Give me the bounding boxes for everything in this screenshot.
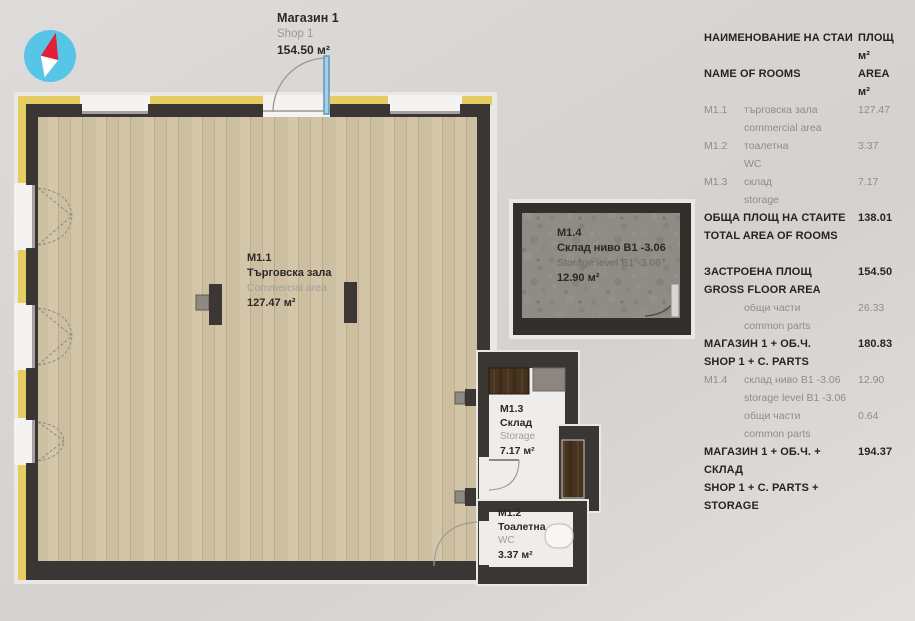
- total-label-bg: ОБЩА ПЛОЩ НА СТАИТЕ: [704, 209, 858, 227]
- room-name-en: common parts: [744, 317, 858, 335]
- total-value: 194.37: [858, 443, 904, 479]
- floor-plan-page: Магазин 1 Shop 1 154.50 м² M1.1 Търговск…: [0, 0, 915, 621]
- header-col1-bg: НАИМЕНОВАНИЕ НА СТАИ: [704, 29, 858, 65]
- room-name-en: Storage: [500, 430, 535, 444]
- total-label-en: SHOP 1 + C. PARTS + STORAGE: [704, 479, 858, 515]
- room-name-bg: общи части: [744, 407, 858, 425]
- room-name-en: storage level B1 -3.06: [744, 389, 858, 407]
- room-code: [704, 299, 744, 317]
- niche-cabinet: [558, 425, 600, 512]
- room-area: 7.17 м²: [500, 444, 535, 458]
- total-label-bg: МАГАЗИН 1 + ОБ.Ч. + СКЛАД: [704, 443, 858, 479]
- room-name-bg: склад: [744, 173, 858, 191]
- door-gap-m12: [479, 521, 489, 565]
- room-label-m14: M1.4 Склад ниво B1 -3.06 Storage level B…: [557, 226, 666, 286]
- total-label-en: TOTAL AREA OF ROOMS: [704, 227, 858, 245]
- door-gap-m13: [479, 457, 489, 501]
- room-name-bg: тоалетна: [744, 137, 858, 155]
- area-value: 0.64: [858, 407, 904, 425]
- room-label-m13: M1.3 Склад Storage 7.17 м²: [500, 402, 535, 458]
- table-row-total: ЗАСТРОЕНА ПЛОЩ 154.50 GROSS FLOOR AREA: [704, 263, 904, 299]
- pillar-wall-1: [455, 389, 477, 406]
- header-col2-en: AREA м²: [858, 65, 904, 101]
- total-value: 180.83: [858, 335, 904, 353]
- door-leaf: [324, 56, 329, 114]
- wc-fixture: [545, 524, 573, 548]
- total-value: 154.50: [858, 263, 904, 281]
- area-value: 7.17: [858, 173, 904, 191]
- room-id: M1.2: [498, 506, 546, 520]
- total-label-en: SHOP 1 + C. PARTS: [704, 353, 858, 371]
- total-value: 138.01: [858, 209, 904, 227]
- area-value: 127.47: [858, 101, 904, 119]
- header-col2-bg: ПЛОЩ м²: [858, 29, 904, 65]
- total-label-en: GROSS FLOOR AREA: [704, 281, 858, 299]
- room-name-en: Storage level B1 -3.06: [557, 256, 666, 271]
- room-name-bg: общи части: [744, 299, 858, 317]
- room-name-en: WC: [744, 155, 858, 173]
- room-code: [704, 407, 744, 425]
- pillar-right: [344, 282, 357, 323]
- total-label-bg: ЗАСТРОЕНА ПЛОЩ: [704, 263, 858, 281]
- table-row: общи части 0.64 common parts: [704, 407, 904, 443]
- table-header: НАИМЕНОВАНИЕ НА СТАИ ПЛОЩ м² NAME OF ROO…: [704, 29, 904, 101]
- room-area: 3.37 м²: [498, 548, 546, 562]
- shop-title-label: Магазин 1 Shop 1 154.50 м²: [277, 10, 339, 58]
- table-row: M1.4 склад ниво B1 -3.06 12.90 storage l…: [704, 371, 904, 407]
- header-col1-en: NAME OF ROOMS: [704, 65, 858, 101]
- floor-plan-drawing: [0, 0, 710, 621]
- table-row: общи части 26.33 common parts: [704, 299, 904, 335]
- room-label-m12: M1.2 Тоалетна WC 3.37 м²: [498, 506, 546, 562]
- room-id: M1.4: [557, 226, 666, 241]
- room-name-bg: Търговска зала: [247, 266, 331, 281]
- room-code: M1.2: [704, 137, 744, 155]
- room-name-bg: Тоалетна: [498, 520, 546, 534]
- table-row-total: МАГАЗИН 1 + ОБ.Ч. + СКЛАД 194.37 SHOP 1 …: [704, 443, 904, 515]
- room-id: M1.3: [500, 402, 535, 416]
- shop-floor: [38, 117, 477, 561]
- window-top-2: [385, 95, 465, 115]
- area-value: 12.90: [858, 371, 904, 389]
- table-spacer: [704, 245, 904, 263]
- room-name-bg: Склад ниво B1 -3.06: [557, 241, 666, 256]
- room-label-m11: M1.1 Търговска зала Commercial area 127.…: [247, 251, 331, 311]
- area-table: НАИМЕНОВАНИЕ НА СТАИ ПЛОЩ м² NAME OF ROO…: [704, 29, 904, 515]
- table-row: M1.1 търговска зала 127.47 commercial ar…: [704, 101, 904, 137]
- table-row: M1.3 склад 7.17 storage: [704, 173, 904, 209]
- table-row-total: ОБЩА ПЛОЩ НА СТАИТЕ 138.01 TOTAL AREA OF…: [704, 209, 904, 245]
- table-row: M1.2 тоалетна 3.37 WC: [704, 137, 904, 173]
- cabinet-m13-top: [489, 368, 529, 394]
- shop-name-en: Shop 1: [277, 26, 339, 42]
- room-name-bg: склад ниво B1 -3.06: [744, 371, 858, 389]
- area-value: 3.37: [858, 137, 904, 155]
- shop-name-bg: Магазин 1: [277, 10, 339, 26]
- room-code: M1.3: [704, 173, 744, 191]
- cabinet-m13-gray: [533, 368, 565, 391]
- room-name-bg: Склад: [500, 416, 535, 430]
- room-area: 12.90 м²: [557, 271, 666, 286]
- entrance-door: [263, 56, 330, 117]
- window-top-1: [77, 95, 153, 115]
- total-label-bg: МАГАЗИН 1 + ОБ.Ч.: [704, 335, 858, 353]
- room-name-en: WC: [498, 534, 546, 548]
- table-row-total: МАГАЗИН 1 + ОБ.Ч. 180.83 SHOP 1 + C. PAR…: [704, 335, 904, 371]
- room-name-bg: търговска зала: [744, 101, 858, 119]
- room-code: M1.4: [704, 371, 744, 389]
- room-name-en: storage: [744, 191, 858, 209]
- room-id: M1.1: [247, 251, 331, 266]
- room-code: M1.1: [704, 101, 744, 119]
- room-name-en: commercial area: [744, 119, 858, 137]
- room-area: 127.47 м²: [247, 296, 331, 311]
- room-name-en: Commercial area: [247, 281, 331, 296]
- room-name-en: common parts: [744, 425, 858, 443]
- compass-north-icon: [12, 18, 88, 94]
- shop-area: 154.50 м²: [277, 42, 339, 58]
- door-leaf-m14: [671, 284, 679, 317]
- pillar-wall-2: [455, 488, 477, 506]
- area-value: 26.33: [858, 299, 904, 317]
